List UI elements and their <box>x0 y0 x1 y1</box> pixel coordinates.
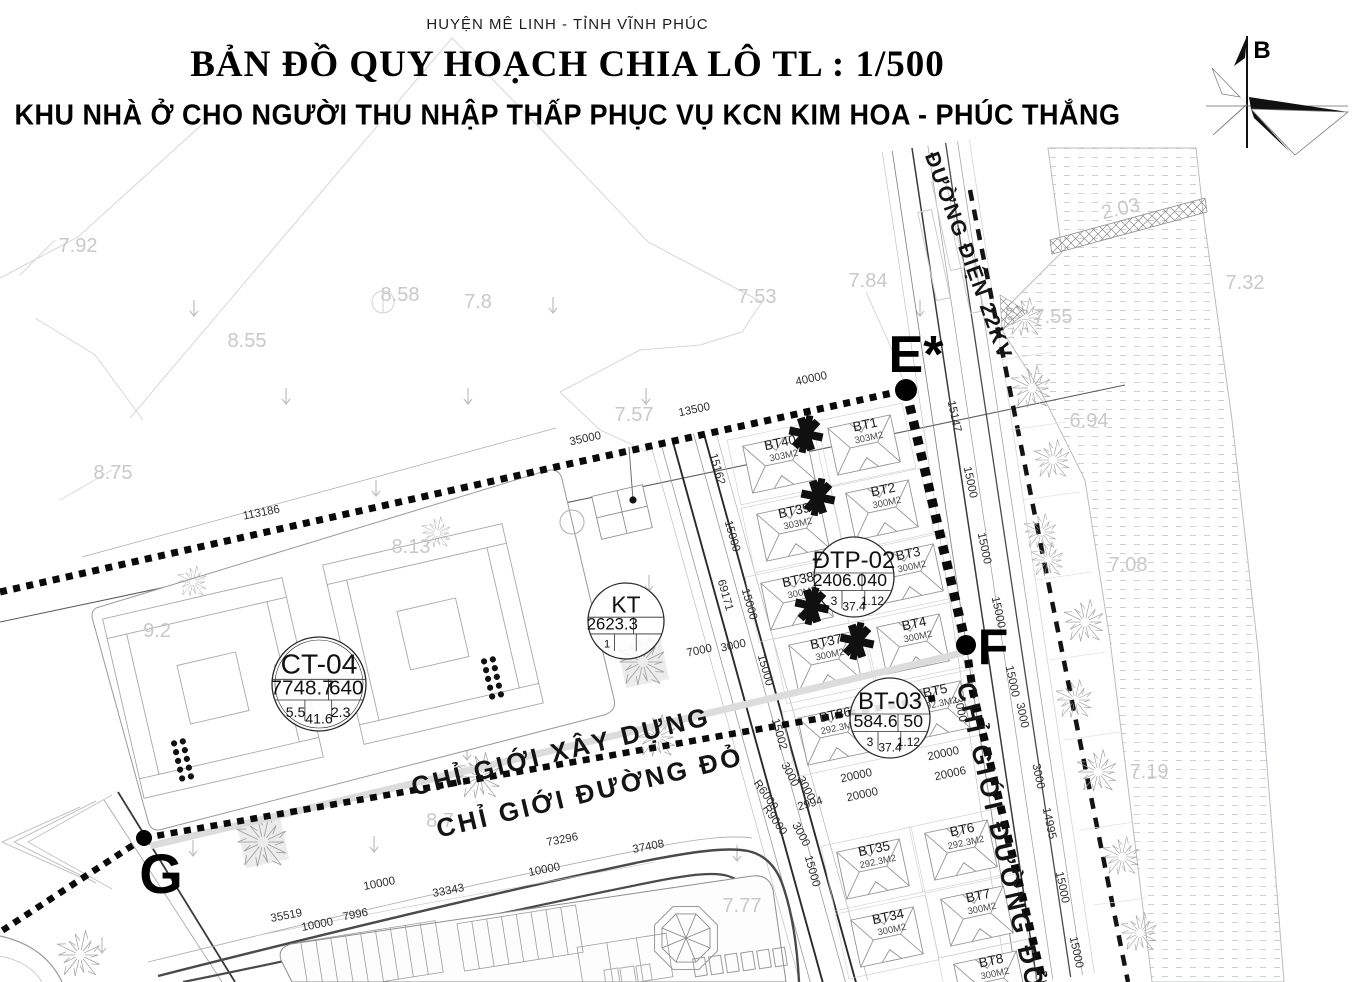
elevation-label: 7.08 <box>1109 554 1148 576</box>
elevation-label: 9.2 <box>143 620 171 642</box>
dimension-label: 3000 <box>794 774 817 802</box>
elevation-label: 8.58 <box>381 284 420 306</box>
info-circle-value: 3 <box>867 735 874 749</box>
info-circle-value: 40 <box>867 570 887 590</box>
dimension-label: R9000 <box>760 803 789 838</box>
marker-dot <box>956 635 976 655</box>
dimension-label: 15000 <box>722 519 742 553</box>
dimension-label: 15000 <box>802 854 822 888</box>
dimension-label: 15000 <box>739 587 759 621</box>
flow-arrow-icon <box>642 388 650 404</box>
elevation-label: 7.19 <box>1130 761 1169 783</box>
contour-line <box>452 38 762 302</box>
corner-road <box>0 956 42 982</box>
flow-arrow-icon <box>370 836 378 852</box>
tree-icon <box>1034 440 1069 478</box>
map-canvas: BT1303M2BT2300M2BT3300M2BT4300M2BT5292.3… <box>0 0 1365 982</box>
dimension-label: 7000 <box>686 643 714 660</box>
marker-E: E* <box>889 326 945 401</box>
chevron-mark <box>28 795 112 889</box>
marker-label: F <box>978 619 1009 675</box>
chevron-mark <box>14 801 96 883</box>
compass-star-outline <box>1213 104 1247 135</box>
flow-arrow-icon <box>916 300 924 316</box>
dimension-label: 10000 <box>528 861 562 879</box>
flow-arrow-icon <box>189 840 197 856</box>
info-circle-value: 584.6 <box>854 711 898 731</box>
elevation-label: 7.53 <box>738 286 777 308</box>
dimension-label: 15147 <box>945 399 963 433</box>
info-circle-value: 5.5 <box>286 704 306 720</box>
info-circle-KT: KT2623.31 <box>587 583 664 659</box>
plot-line <box>1064 732 1120 740</box>
flow-arrow-icon <box>98 937 106 953</box>
contour-line <box>20 240 55 275</box>
dimension-label: 3000 <box>789 820 812 848</box>
elevation-label: 7.8 <box>464 291 492 313</box>
dimension-label: 35000 <box>568 430 602 448</box>
dimension-label: 20006 <box>933 765 967 783</box>
dimension-label: 3000 <box>1013 702 1030 730</box>
dimension-label: 10000 <box>363 875 397 893</box>
dimension-label: 73296 <box>546 831 580 849</box>
flow-arrow-icon <box>190 300 198 316</box>
dimension-label: 113186 <box>242 504 281 523</box>
info-circle-value: 41.6 <box>305 710 333 726</box>
dimension-label: 15000 <box>755 653 775 687</box>
elevation-label: 8.75 <box>94 462 133 484</box>
tree-icon <box>1064 599 1103 641</box>
tree-icon <box>1103 837 1138 875</box>
dimension-label: 14995 <box>1040 806 1058 840</box>
compass-star-outline <box>1212 68 1240 97</box>
elevation-label: 7.92 <box>59 235 98 257</box>
boundary-dotted-line <box>0 838 144 932</box>
dimension-label: 20000 <box>839 767 873 785</box>
corner-road <box>0 936 62 982</box>
dimension-label: 15000 <box>1067 935 1085 969</box>
tree-icon <box>1077 749 1116 791</box>
dimension-label: 15000 <box>1053 870 1071 904</box>
contour-line <box>560 302 762 392</box>
flow-arrow-icon <box>733 845 741 861</box>
dimension-label: 20000 <box>926 745 960 763</box>
flow-arrow-icon <box>549 297 557 313</box>
elevation-label: 8.55 <box>228 330 267 352</box>
elevation-label: 7.55 <box>1034 306 1073 328</box>
plot-line <box>1080 822 1134 830</box>
dimension-label: 20000 <box>845 786 879 804</box>
info-circle-BT-03: BT-03584.650337.41.12 <box>850 678 930 758</box>
marker-label: G <box>139 842 183 905</box>
info-circle-value: 3 <box>831 594 838 608</box>
flow-arrow-icon <box>282 388 290 404</box>
plot-line <box>1050 652 1106 660</box>
elevation-label: 7.57 <box>615 404 654 426</box>
info-circle-value: 1.12 <box>897 735 921 749</box>
north-arrow: B <box>1206 36 1348 155</box>
info-circle-value: 640 <box>329 676 364 699</box>
north-label: B <box>1253 37 1270 64</box>
info-circle-value: 2.3 <box>331 704 351 720</box>
contour-line <box>130 38 452 418</box>
elevation-label: 7.84 <box>849 270 888 292</box>
north-arrowhead <box>1234 36 1247 66</box>
marker-label: E* <box>889 326 945 384</box>
dimension-label: 3000 <box>1029 763 1046 791</box>
compass-star-outline <box>1251 109 1348 155</box>
flag-pole-dot <box>629 496 636 503</box>
dimension-label: 37408 <box>632 838 666 856</box>
info-circle-value: 50 <box>903 711 923 731</box>
info-circle-CT-04: CT-047748.76405.541.62.3 <box>270 637 366 731</box>
dimension-label: 3000 <box>720 638 748 655</box>
plot-line <box>1094 898 1146 905</box>
elevation-label: 7.77 <box>723 895 762 917</box>
elevation-label: 7.32 <box>1226 272 1265 294</box>
flow-arrow-icon <box>464 388 472 404</box>
info-circle-value: 2406.0 <box>813 570 867 590</box>
info-circle-value: 7748.7 <box>270 676 333 699</box>
elevation-label: 8.13 <box>392 536 431 558</box>
info-circle-name: CT-04 <box>281 648 358 680</box>
dimension-label: 40000 <box>794 370 828 388</box>
contour-line <box>35 318 143 420</box>
tree-icon <box>1056 680 1091 718</box>
elevation-label: 6.94 <box>1070 410 1109 432</box>
dimension-label: 15000 <box>975 531 993 565</box>
marker-G: G <box>136 830 183 905</box>
dimension-label: 13500 <box>677 401 711 419</box>
tree-icon <box>57 930 99 976</box>
info-circle-value: 1 <box>604 639 610 651</box>
dimension-label: 7996 <box>342 907 369 924</box>
flow-arrow-icon <box>372 480 380 496</box>
info-circle-value: 2623.3 <box>587 614 638 633</box>
dimension-label: 15162 <box>707 452 727 486</box>
planning-map-sheet: BT1303M2BT2300M2BT3300M2BT4300M2BT5292.3… <box>0 0 1365 982</box>
info-circle-value: 1.12 <box>861 594 885 608</box>
dimension-label: 10000 <box>301 916 335 934</box>
dimension-label: 35519 <box>270 907 304 925</box>
kt-structure <box>592 485 653 540</box>
contour-line <box>0 110 218 278</box>
